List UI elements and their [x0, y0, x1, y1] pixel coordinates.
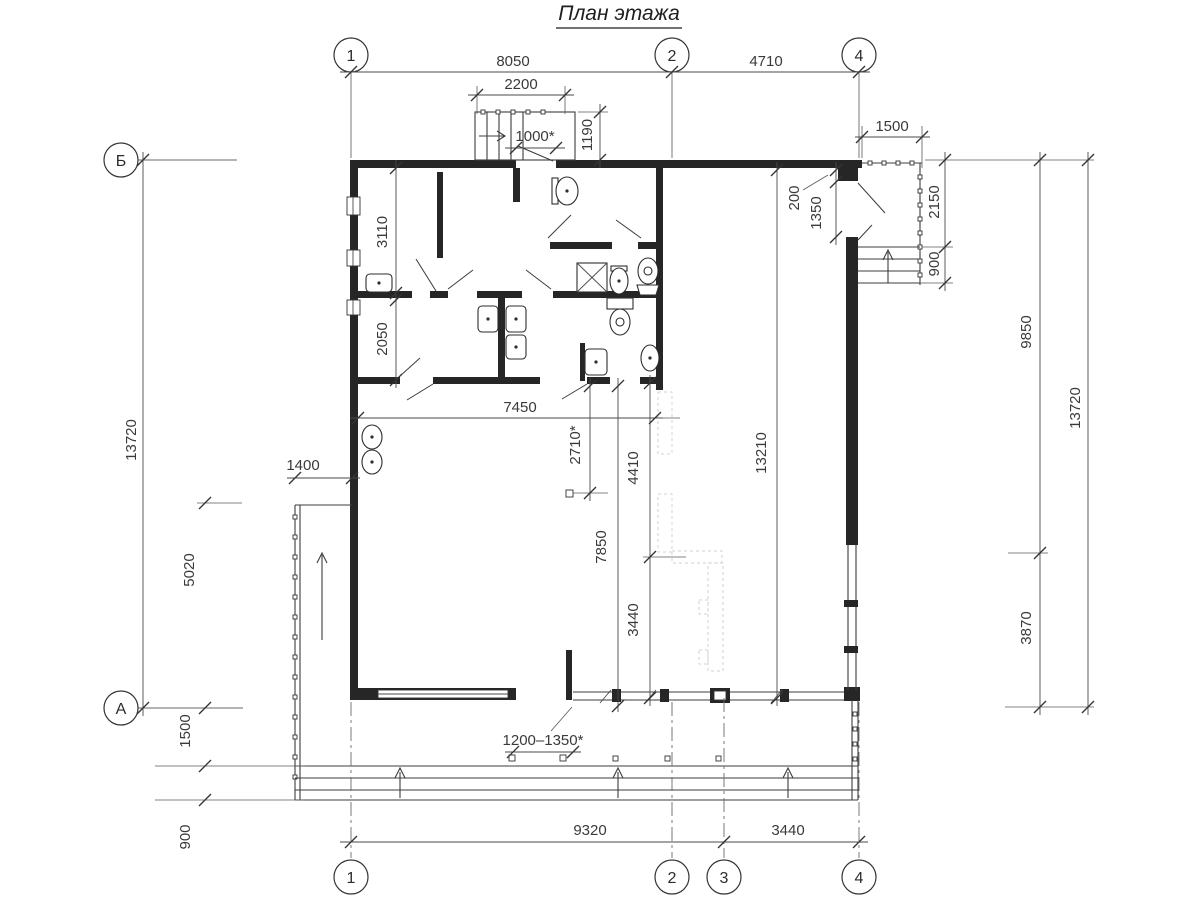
- basin-bath2: [641, 345, 659, 371]
- dim-3440-mid: 3440: [625, 603, 642, 636]
- dim-13720-left: 13720: [123, 419, 140, 461]
- dim-200: 200: [786, 185, 803, 210]
- dim-1500-left: 1500: [177, 714, 194, 747]
- porch-door-leaf: [858, 183, 885, 213]
- hall-basin-1: [362, 425, 382, 449]
- grid-label-bottom-3: 3: [720, 870, 729, 887]
- leader-200: [803, 175, 828, 190]
- bottom-glazing: [573, 687, 860, 703]
- grid-label-left-b: Б: [116, 153, 127, 170]
- toilet-bath1: [637, 258, 659, 295]
- toilet-bath2: [607, 298, 633, 335]
- page-title: План этажа: [558, 2, 680, 25]
- double-sink-left: [478, 306, 498, 332]
- dim-1400: 1400: [286, 457, 319, 474]
- double-sink-right-top: [506, 306, 526, 332]
- dim-2050: 2050: [374, 322, 391, 355]
- grid-label-left-a: А: [116, 701, 127, 718]
- dim-5020: 5020: [181, 553, 198, 586]
- grid-lines: [138, 72, 859, 858]
- dim-4710: 4710: [749, 53, 782, 70]
- dim-7450: 7450: [503, 399, 536, 416]
- extension-lines: [155, 86, 1094, 800]
- dimension-ticks: [137, 66, 1094, 848]
- dimension-labels: 8050 4710 2200 1000* 1190 1500 200 1350 …: [123, 53, 1084, 850]
- dim-7850: 7850: [593, 530, 610, 563]
- terrace-steps: [295, 700, 858, 800]
- dim-4410: 4410: [625, 451, 642, 484]
- dim-9320: 9320: [573, 822, 606, 839]
- dashed-zone: [658, 392, 723, 671]
- leader-1200-1350: [551, 707, 572, 731]
- entrance-porch: [858, 161, 922, 285]
- floor-plan-drawing: План этажа: [0, 0, 1200, 900]
- dimension-lines: [143, 72, 1088, 842]
- drawing-title: План этажа: [556, 2, 682, 28]
- dim-1500-top: 1500: [875, 118, 908, 135]
- fixtures: [362, 177, 659, 474]
- grid-label-top-2: 2: [668, 48, 677, 65]
- ramp: [293, 505, 352, 800]
- dim-1190: 1190: [579, 119, 596, 151]
- dim-1350: 1350: [808, 196, 825, 229]
- dim-2710: 2710*: [567, 425, 584, 464]
- basin-bath1: [610, 266, 628, 294]
- sink-corner: [585, 349, 607, 375]
- grid-label-top-4: 4: [855, 48, 864, 65]
- wall-basin-vestibule: [552, 177, 578, 205]
- dim-900-left: 900: [177, 824, 194, 849]
- dim-8050: 8050: [496, 53, 529, 70]
- grid-label-top-1: 1: [347, 48, 356, 65]
- right-glazing: [844, 545, 858, 690]
- dim-2150: 2150: [926, 185, 943, 218]
- grid-label-bottom-1: 1: [347, 870, 356, 887]
- dim-1000: 1000*: [515, 128, 554, 145]
- dim-13210: 13210: [753, 432, 770, 474]
- hall-basin-2: [362, 450, 382, 474]
- floor-plan-page: План этажа: [0, 0, 1200, 900]
- dim-3870: 3870: [1018, 611, 1035, 644]
- shower-tray: [577, 263, 607, 292]
- dim-3110: 3110: [374, 216, 391, 248]
- grid-label-bottom-4: 4: [855, 870, 864, 887]
- exterior-walls: [350, 160, 862, 700]
- dim-2200: 2200: [504, 76, 537, 93]
- double-sink-right-bottom: [506, 335, 526, 359]
- dim-3440-bottom: 3440: [771, 822, 804, 839]
- dim-1200-1350: 1200–1350*: [503, 732, 584, 749]
- dim-13720-right: 13720: [1067, 387, 1084, 429]
- dim-900-porch: 900: [926, 251, 943, 276]
- dim-9850: 9850: [1018, 315, 1035, 348]
- basin-room-top: [366, 274, 392, 292]
- grid-label-bottom-2: 2: [668, 870, 677, 887]
- column-marker: [566, 490, 573, 497]
